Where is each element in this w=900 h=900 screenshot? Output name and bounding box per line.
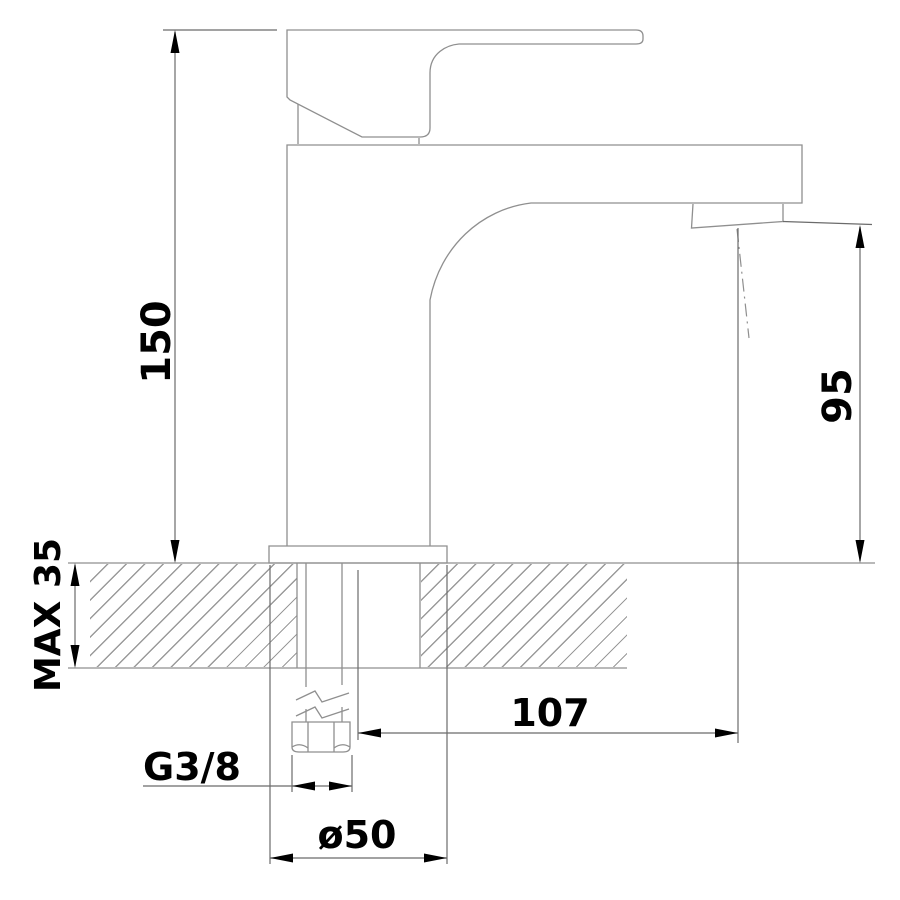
hex-nut-outline [292, 722, 350, 752]
threaded-shank-lines [306, 563, 342, 722]
faucet-lever-outline [287, 30, 643, 137]
faucet-body-outline [287, 145, 802, 546]
base-flange-outline [269, 546, 447, 563]
dimension-label-max-deck-thickness: MAX 35 [28, 538, 69, 692]
countertop-outline [68, 563, 875, 668]
dimension-lines [75, 30, 872, 864]
dimension-label-overall-height: 150 [134, 300, 180, 384]
dimension-label-spout-height: 95 [815, 368, 861, 424]
shank-break-symbol [296, 691, 349, 718]
spout-aerator-outline [692, 204, 784, 228]
drawing-linework: 150 MAX 35 95 107 G3/8 ø50 [0, 0, 900, 900]
water-stream-centerline [737, 229, 749, 338]
technical-drawing-canvas: 150 MAX 35 95 107 G3/8 ø50 [0, 0, 900, 900]
dimension-label-inlet-thread: G3/8 [143, 745, 241, 789]
faucet-handle-base-lines [298, 104, 419, 144]
dimension-label-base-diameter: ø50 [318, 813, 397, 857]
dimension-arrowheads [71, 30, 865, 863]
dimension-label-spout-reach: 107 [510, 691, 589, 735]
